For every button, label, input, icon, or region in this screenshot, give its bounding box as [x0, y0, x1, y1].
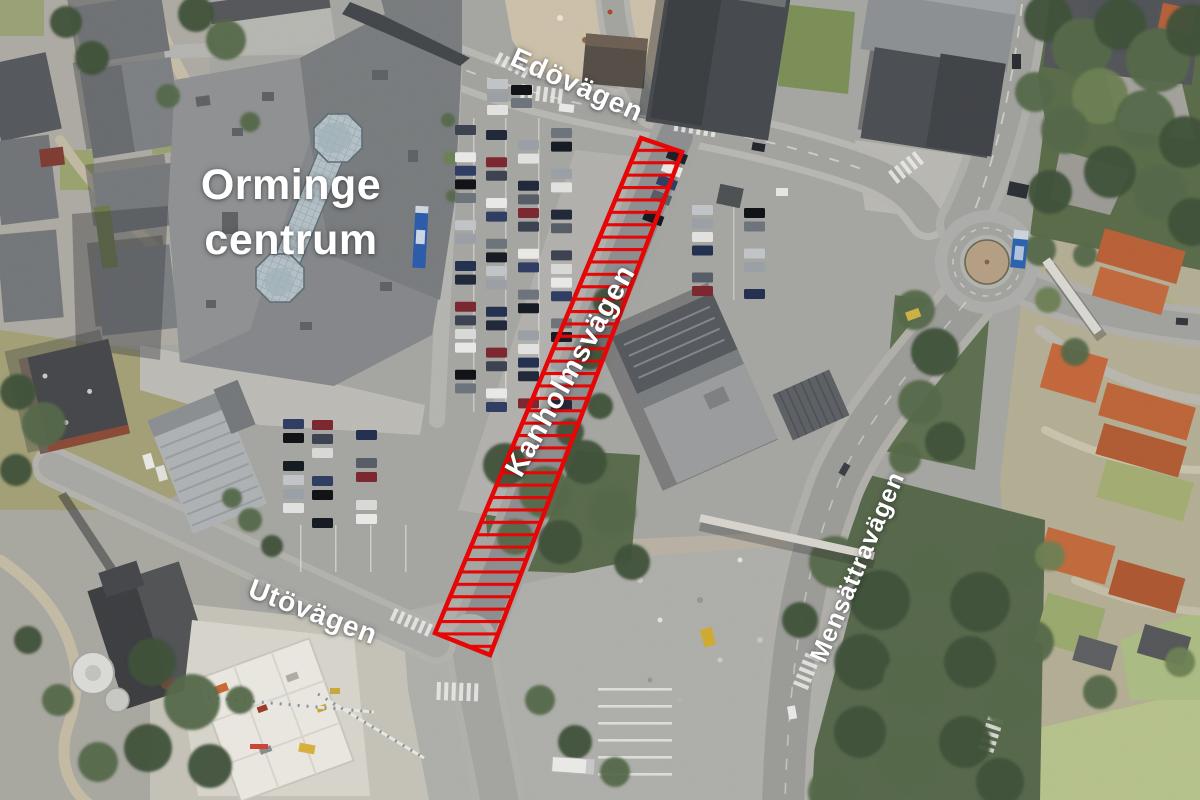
aerial-photo	[0, 0, 1200, 800]
photo-grain	[0, 0, 1200, 800]
aerial-map: Orminge centrum Edövägen Kanholmsvägen U…	[0, 0, 1200, 800]
